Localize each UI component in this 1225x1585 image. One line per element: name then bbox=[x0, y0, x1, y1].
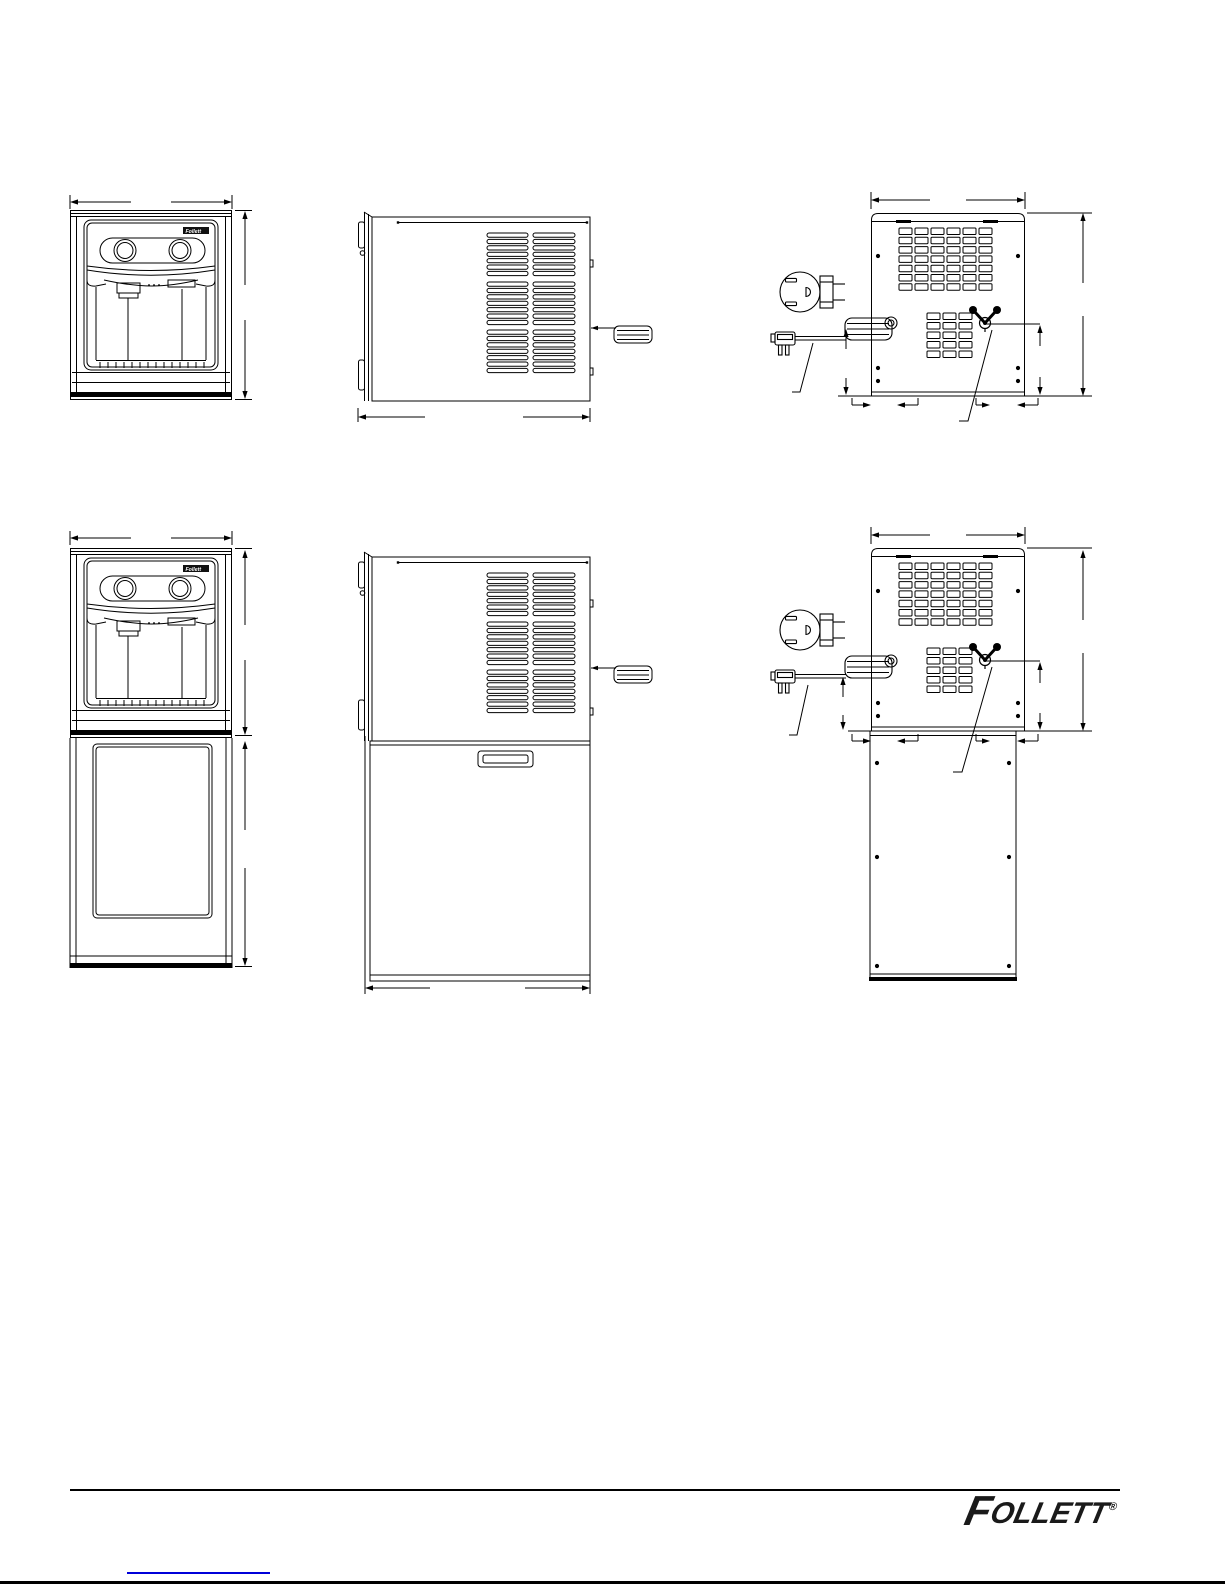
base-door-handle bbox=[478, 751, 533, 767]
dimension-lines bbox=[70, 531, 252, 967]
base-cabinet-front bbox=[70, 738, 232, 968]
countertop-back-view bbox=[740, 183, 1105, 438]
floor-model-front-view bbox=[55, 520, 260, 985]
dimension-lines bbox=[358, 408, 590, 422]
page-bottom-edge bbox=[0, 1581, 1225, 1584]
dimension-lines bbox=[838, 192, 1092, 405]
follett-logo-rest: OLLETT bbox=[988, 1500, 1111, 1528]
dimension-lines bbox=[843, 527, 1092, 741]
base-cabinet-side bbox=[365, 736, 590, 983]
base-cabinet-back bbox=[869, 731, 1017, 981]
follett-logo: FOLLETT® bbox=[962, 1492, 1120, 1528]
dimension-lines bbox=[70, 195, 252, 400]
footer-link[interactable] bbox=[127, 1572, 270, 1574]
countertop-side-view bbox=[345, 193, 665, 438]
leader-lines bbox=[792, 330, 992, 421]
manual-page: Follett bbox=[0, 0, 1225, 1585]
footer-divider bbox=[70, 1489, 1120, 1491]
countertop-front-view bbox=[55, 185, 260, 430]
floor-model-side-view bbox=[345, 530, 665, 1005]
floor-model-back-view bbox=[740, 525, 1105, 995]
dimension-lines bbox=[365, 980, 590, 994]
